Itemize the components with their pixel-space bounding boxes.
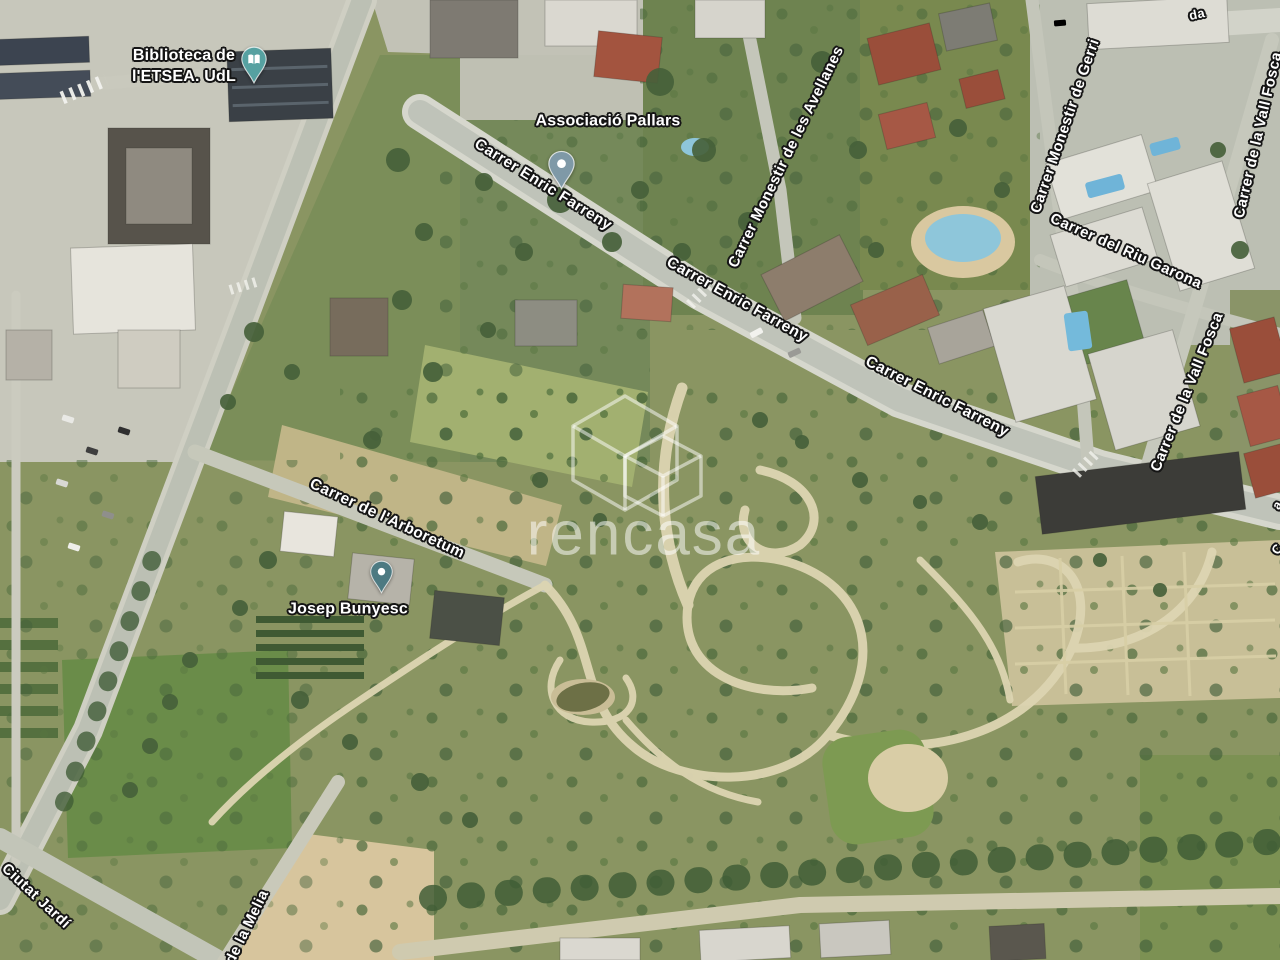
associacio-pallars-pin-icon[interactable] [548, 148, 575, 192]
map-viewport[interactable]: rencasa Carrer Enric FarrenyCarrer Enric… [0, 0, 1280, 960]
street-label: Ciutat Jardí [0, 860, 74, 932]
street-label: de la Melia [222, 887, 272, 960]
street-label: Carrer Monestir de Gerri [1027, 37, 1103, 216]
josep-bunyesc-pin-icon[interactable] [370, 560, 393, 594]
biblioteca-de-letsea-udl-pin-icon[interactable] [241, 46, 267, 84]
street-label: Carrer Monestir de les Avellanes [725, 43, 847, 270]
street-label-fragment: C [1268, 541, 1280, 557]
labels-layer: Carrer Enric FarrenyCarrer Enric Farreny… [0, 0, 1280, 960]
street-label: Carrer de la Vall Fosca [1147, 310, 1226, 474]
street-label: Carrer de l'Arboretum [307, 475, 468, 563]
biblioteca-de-letsea-udl-label[interactable]: Biblioteca del'ETSEA. UdL [132, 45, 236, 87]
street-label: Carrer del Riu Garona [1048, 210, 1205, 292]
josep-bunyesc-label[interactable]: Josep Bunyesc [288, 598, 408, 619]
street-label: Carrer Enric Farreny [471, 135, 615, 234]
street-label-fragment: a [1269, 498, 1280, 512]
associacio-pallars-label[interactable]: Associació Pallars [535, 110, 680, 131]
street-label: Carrer Enric Farreny [862, 353, 1012, 441]
street-label-fragment: da [1188, 5, 1207, 23]
street-label: Carrer de la Vall Fosca [1231, 50, 1280, 220]
